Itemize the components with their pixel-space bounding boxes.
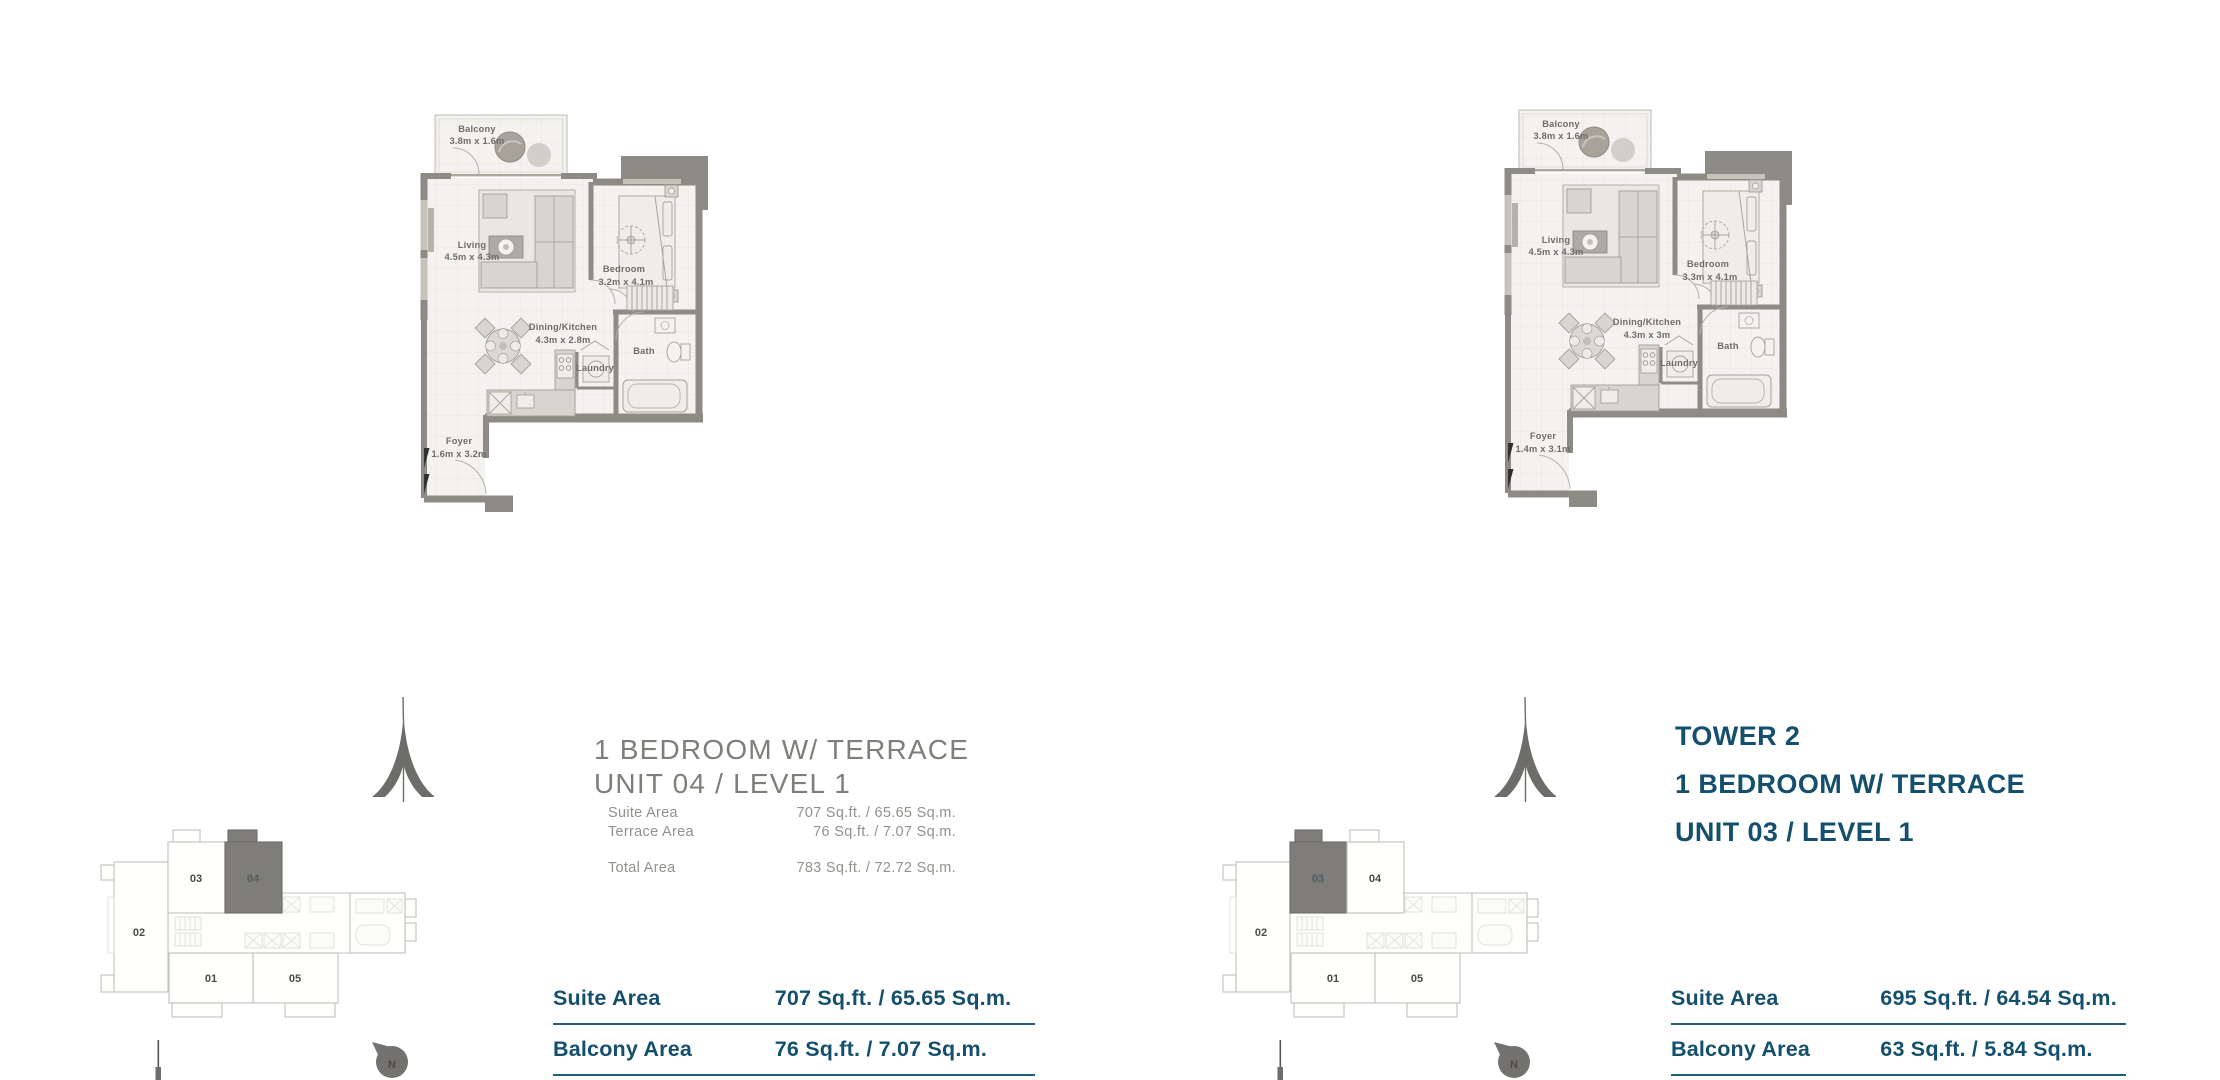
floor-plan-drawing: Balcony 3.8m x 1.6m Living 4.5m x 4.3m B… (1499, 95, 1799, 507)
dining-dim: 4.3m x 2.8m (536, 335, 591, 345)
north-label: N (388, 1059, 396, 1071)
dining-label: Dining/Kitchen (529, 322, 598, 332)
detail-value: 76 Sq.ft. / 7.07 Sq.m. (813, 823, 956, 842)
laundry-label: Laundry (576, 363, 615, 373)
keyplan-label-01: 01 (205, 973, 217, 985)
bedroom-label: Bedroom (1687, 259, 1729, 269)
living-dim: 4.5m x 4.3m (1529, 247, 1584, 257)
spire-drawing (1493, 697, 1557, 807)
key-plan: 02 03 04 01 05 N (1217, 805, 1582, 1080)
floor-plan: Balcony 3.8m x 1.6m Living 4.5m x 4.3m B… (415, 100, 715, 512)
keyplan-label-04: 04 (1369, 873, 1382, 885)
wardrobe (627, 286, 673, 310)
table-label: Suite Area (1671, 986, 1880, 1011)
north-badge: N (1494, 1042, 1530, 1078)
dining-dim: 4.3m x 3m (1624, 330, 1671, 340)
right-wing (1472, 893, 1538, 953)
right-wing (350, 893, 416, 953)
toilet (667, 342, 681, 362)
bedroom-dim: 3.3m x 4.1m (1683, 272, 1738, 282)
area-table: Suite Area 695 Sq.ft. / 64.54 Sq.m. Balc… (1671, 974, 2126, 1076)
balcony-label: Balcony (1542, 119, 1580, 129)
wardrobe (1711, 281, 1757, 305)
unit-type-line: 1 BEDROOM W/ TERRACE (594, 733, 969, 767)
unit-title: 1 BEDROOM W/ TERRACE UNIT 04 / LEVEL 1 (594, 733, 969, 801)
unit-level-line: UNIT 03 / LEVEL 1 (1675, 808, 2025, 856)
detail-label: Terrace Area (608, 823, 694, 842)
spire-icon (1493, 697, 1557, 807)
foyer-dim: 1.4m x 3.1m (1516, 444, 1571, 454)
keyplan-label-05: 05 (289, 973, 301, 985)
area-table: Suite Area 707 Sq.ft. / 65.65 Sq.m. Balc… (553, 974, 1035, 1076)
foyer-dim: 1.6m x 3.2m (432, 449, 487, 459)
spire-icon (371, 697, 435, 807)
keyplan-label-01: 01 (1327, 973, 1339, 985)
unit-type-line: 1 BEDROOM W/ TERRACE (1675, 760, 2025, 808)
floor-plan: Balcony 3.8m x 1.6m Living 4.5m x 4.3m B… (1499, 95, 1799, 507)
bedroom-dim: 3.2m x 4.1m (599, 277, 654, 287)
keyplan-label-02: 02 (1255, 927, 1267, 939)
spire-drawing (371, 697, 435, 807)
keyplan-label-02: 02 (133, 927, 145, 939)
laundry-label: Laundry (1660, 358, 1699, 368)
adjacent-spire-line (156, 1040, 162, 1080)
balcony-plant (527, 143, 551, 167)
basin (655, 318, 675, 333)
keyplan-label-03: 03 (1312, 873, 1324, 885)
unit-title: TOWER 2 1 BEDROOM W/ TERRACE UNIT 03 / L… (1675, 712, 2025, 856)
stove (1641, 349, 1657, 373)
keyplan-label-04: 04 (247, 873, 260, 885)
foyer-label: Foyer (446, 436, 472, 446)
sink (517, 395, 534, 408)
table-row-balcony: Balcony Area 63 Sq.ft. / 5.84 Sq.m. (1671, 1025, 2126, 1076)
tower-line: TOWER 2 (1675, 712, 2025, 760)
balcony-dim: 3.8m x 1.6m (1534, 131, 1589, 141)
living-label: Living (458, 240, 487, 250)
detail-label: Total Area (608, 859, 676, 878)
table-row-suite: Suite Area 707 Sq.ft. / 65.65 Sq.m. (553, 974, 1035, 1025)
foyer-label: Foyer (1530, 431, 1556, 441)
key-plan-drawing: 02 03 04 01 05 N (95, 805, 460, 1080)
stove (557, 354, 573, 378)
key-plan: 02 03 04 01 05 N (95, 805, 460, 1080)
detail-value: 707 Sq.ft. / 65.65 Sq.m. (796, 804, 956, 823)
keyplan-label-05: 05 (1411, 973, 1423, 985)
table-value: 76 Sq.ft. / 7.07 Sq.m. (775, 1037, 987, 1062)
key-plan-drawing: 02 03 04 01 05 N (1217, 805, 1582, 1080)
area-details: Suite Area 707 Sq.ft. / 65.65 Sq.m. Terr… (608, 804, 956, 878)
north-label: N (1510, 1059, 1518, 1071)
north-badge: N (372, 1042, 408, 1078)
basin (1739, 313, 1759, 328)
living-label: Living (1542, 235, 1571, 245)
table-value: 63 Sq.ft. / 5.84 Sq.m. (1880, 1037, 2092, 1062)
bedroom-label: Bedroom (603, 264, 645, 274)
bath-label: Bath (633, 346, 655, 356)
table-label: Balcony Area (553, 1037, 775, 1062)
detail-row-suite: Suite Area 707 Sq.ft. / 65.65 Sq.m. (608, 804, 956, 823)
unit-level-line: UNIT 04 / LEVEL 1 (594, 767, 969, 801)
table-row-suite: Suite Area 695 Sq.ft. / 64.54 Sq.m. (1671, 974, 2126, 1025)
detail-row-terrace: Terrace Area 76 Sq.ft. / 7.07 Sq.m. (608, 823, 956, 842)
balcony-dim: 3.8m x 1.6m (450, 136, 505, 146)
toilet (1751, 337, 1765, 357)
keyplan-label-03: 03 (190, 873, 202, 885)
balcony-plant (1611, 138, 1635, 162)
table-label: Suite Area (553, 986, 775, 1011)
detail-label: Suite Area (608, 804, 678, 823)
sink (1601, 390, 1618, 403)
adjacent-spire-line (1278, 1040, 1284, 1080)
table-value: 695 Sq.ft. / 64.54 Sq.m. (1880, 986, 2117, 1011)
dining-label: Dining/Kitchen (1613, 317, 1682, 327)
living-dim: 4.5m x 4.3m (445, 252, 500, 262)
floor-plan-drawing: Balcony 3.8m x 1.6m Living 4.5m x 4.3m B… (415, 100, 715, 512)
balcony-label: Balcony (458, 124, 496, 134)
table-label: Balcony Area (1671, 1037, 1880, 1062)
detail-value: 783 Sq.ft. / 72.72 Sq.m. (796, 859, 956, 878)
bath-label: Bath (1717, 341, 1739, 351)
table-row-balcony: Balcony Area 76 Sq.ft. / 7.07 Sq.m. (553, 1025, 1035, 1076)
table-value: 707 Sq.ft. / 65.65 Sq.m. (775, 986, 1012, 1011)
detail-row-total: Total Area 783 Sq.ft. / 72.72 Sq.m. (608, 859, 956, 878)
